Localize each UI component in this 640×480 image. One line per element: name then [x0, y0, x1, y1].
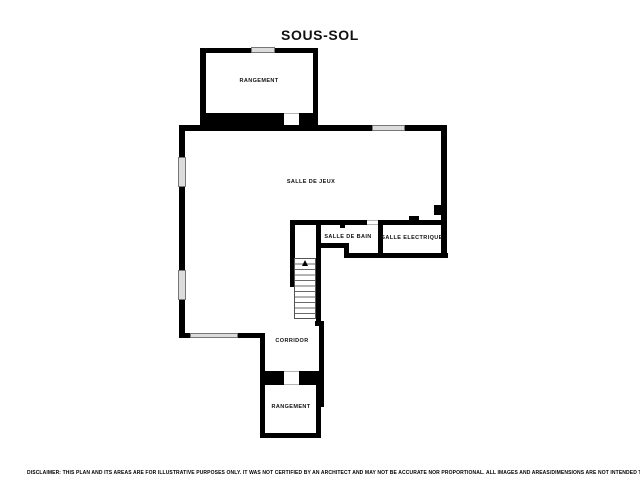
room-label-electrical: SALLE ELECTRIQUE — [381, 235, 442, 241]
wall-right-jog — [434, 205, 442, 215]
disclaimer-text: DISCLAIMER: THIS PLAN AND ITS AREAS ARE … — [27, 470, 640, 476]
wall-electrical-stub — [409, 216, 419, 221]
door-gap-bath-a — [367, 220, 378, 221]
window-main-top — [372, 125, 405, 131]
wall-corridor-band-left — [261, 371, 284, 385]
door-gap-storage-top — [284, 113, 299, 114]
door-gap-corridor-bottom — [284, 384, 299, 385]
room-label-bathroom: SALLE DE BAIN — [324, 234, 371, 240]
room-label-corridor: CORRIDOR — [275, 338, 308, 344]
room-label-storage-bottom: RANGEMENT — [271, 404, 310, 410]
door-gap-bath-b — [367, 224, 378, 225]
wall-corridor-right — [319, 326, 324, 371]
wall-storage-bottom-bottom — [260, 433, 321, 438]
window-left-upper — [178, 157, 186, 187]
room-label-game-room: SALLE DE JEUX — [287, 179, 335, 185]
wall-corridor-left — [260, 334, 265, 438]
window-left-lower — [178, 270, 186, 300]
wall-stair-right — [316, 220, 321, 321]
door-gap-corridor-top — [284, 371, 299, 372]
stair-direction-arrow-icon — [302, 260, 308, 266]
wall-bottom-right-section — [344, 253, 448, 258]
stairs — [294, 258, 316, 319]
wall-storage-bottom-right-strip — [321, 371, 324, 407]
wall-bath-jamb — [340, 225, 345, 228]
floor-plan-page: SOUS-SOL RANGEMENT SALLE DE JEUX SALLE D… — [0, 0, 640, 480]
wall-bath-top — [291, 220, 367, 225]
window-storage-top — [251, 47, 275, 53]
wall-main-top — [179, 125, 447, 131]
page-title: SOUS-SOL — [0, 27, 640, 43]
window-bottom — [190, 333, 238, 338]
room-label-storage-top: RANGEMENT — [239, 78, 278, 84]
